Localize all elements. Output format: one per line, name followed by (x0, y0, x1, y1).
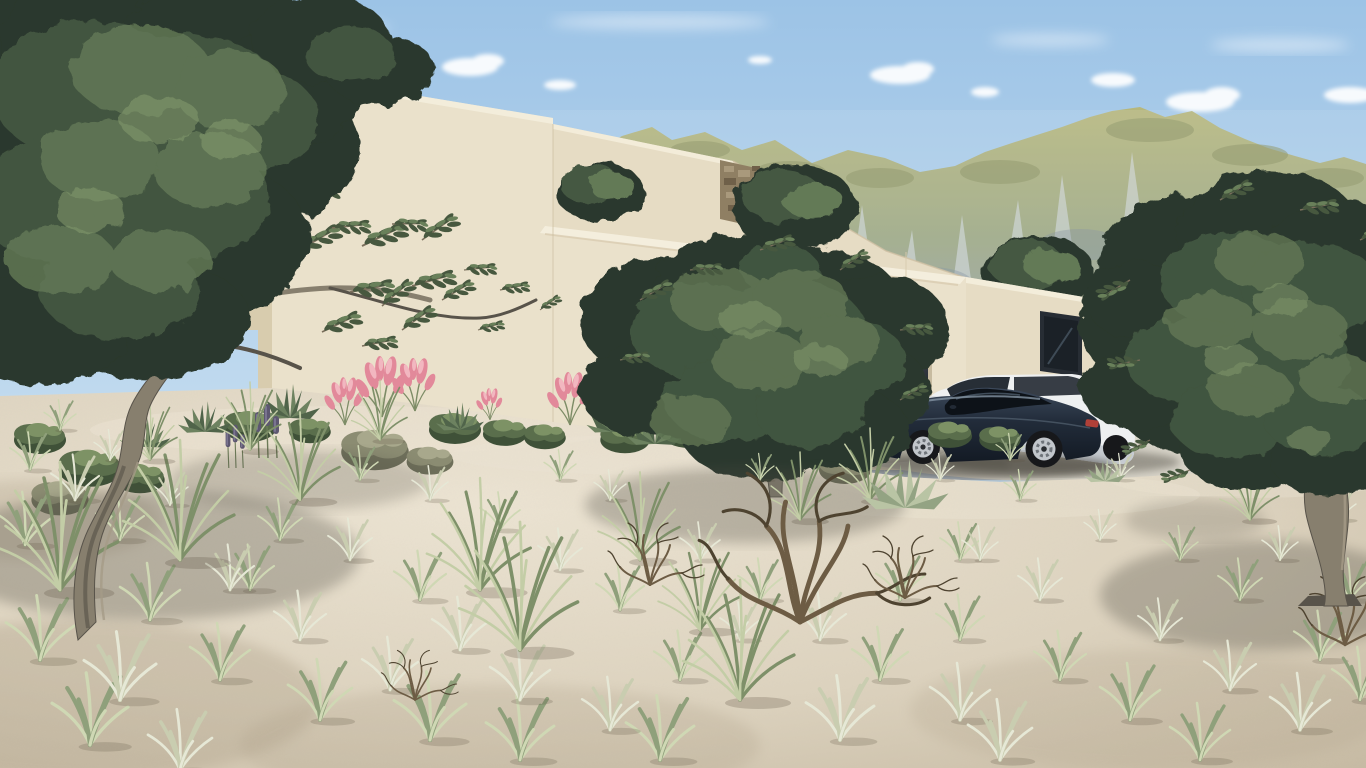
window (1040, 311, 1082, 377)
band-shrub-green (524, 424, 566, 449)
sports-car-mirror (950, 405, 957, 409)
sports-car-rear-wheel (1026, 431, 1063, 468)
courtyard-crown-icon (556, 162, 644, 222)
villa-rendering (0, 0, 1366, 768)
band-shrub-green (483, 420, 527, 446)
rendering-viewport (0, 0, 1366, 768)
band-shrub-green (928, 422, 972, 448)
